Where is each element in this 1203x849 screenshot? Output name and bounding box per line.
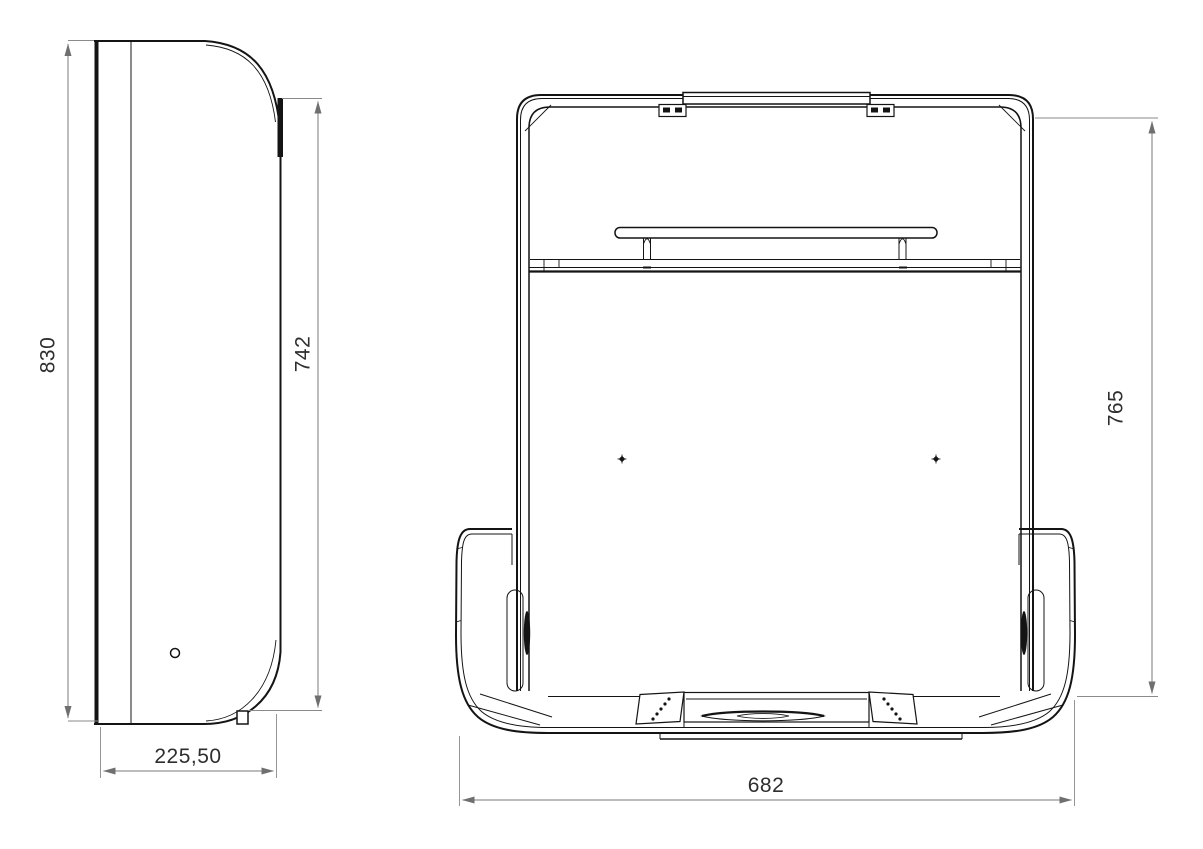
dim-label-overall-height: 830 xyxy=(37,337,60,374)
hinge-flap-right xyxy=(1028,590,1044,691)
frame-inner-contour xyxy=(529,107,1021,691)
drawing-sheet: 830 742 225,50 xyxy=(0,0,1203,849)
mount-hole-left xyxy=(618,455,627,464)
side-view xyxy=(94,41,283,724)
frame-mid-contour xyxy=(521,99,1030,692)
center-latch-assembly xyxy=(636,692,962,739)
side-top-inner-curve xyxy=(206,45,276,122)
frame-outer-contour xyxy=(517,95,1033,691)
handle-leg-left xyxy=(644,239,651,244)
handle-leg-right xyxy=(899,239,906,244)
side-bottom-tab xyxy=(237,711,248,724)
side-outline xyxy=(94,41,281,724)
technical-drawing-canvas: 830 742 225,50 xyxy=(0,0,1203,849)
top-mount-tab xyxy=(683,93,870,105)
dim-label-depth: 225,50 xyxy=(154,745,221,768)
hinge-knuckle-right xyxy=(1021,611,1027,655)
dim-label-front-edge-height: 742 xyxy=(292,336,315,373)
dim-label-overall-width: 682 xyxy=(748,774,785,797)
side-bottom-inner-curve xyxy=(206,640,276,721)
handle-bar xyxy=(615,228,937,239)
front-view xyxy=(456,93,1075,740)
mount-hole-right xyxy=(932,455,941,464)
side-knob-hole xyxy=(171,649,180,658)
hinge-knuckle-left xyxy=(524,611,530,655)
side-front-clip xyxy=(278,98,284,157)
dim-label-frame-height: 765 xyxy=(1105,390,1128,427)
